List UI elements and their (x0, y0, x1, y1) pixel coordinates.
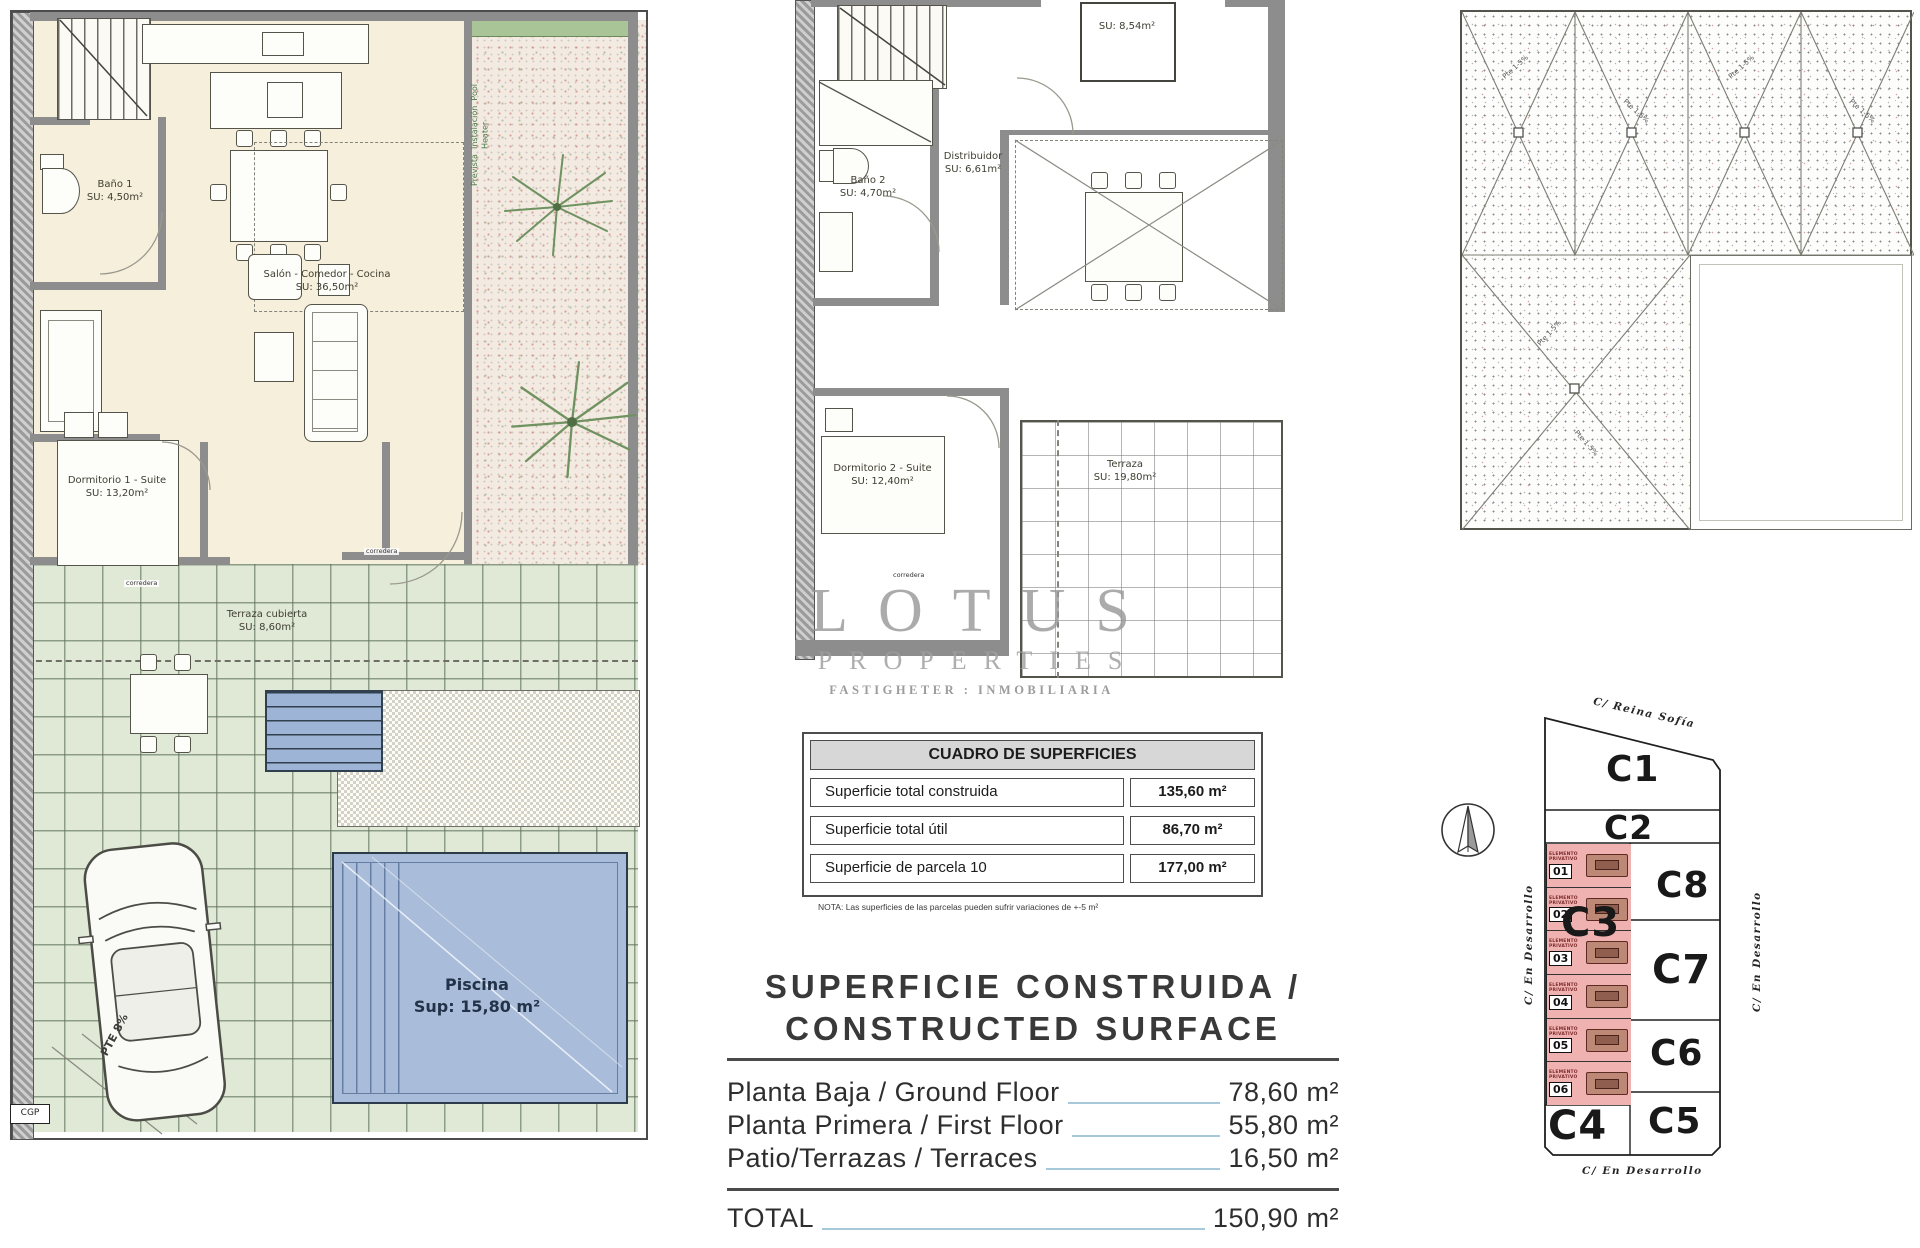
room-label-top: SU: 8,54m² (1077, 20, 1177, 33)
areas-table-note: NOTA: Las superficies de las parcelas pu… (818, 902, 1098, 912)
room-label-salon: Salón - Comedor - Cocina SU: 36,50m² (232, 268, 422, 294)
watermark-tagline: FASTIGHETER : INMOBILIARIA (693, 683, 1250, 698)
summary-row: Patio/Terrazas / Terraces 16,50 m² (727, 1144, 1339, 1174)
room-label-dorm1: Dormitorio 1 - Suite SU: 13,20m² (57, 474, 177, 500)
first-floor-linework (795, 0, 1285, 685)
roof-plan: Pte 1-5% Pte 1-5% Pte 1-5% Pte 1-5% Pte … (1460, 10, 1912, 530)
summary-row-value: 55,80 m² (1228, 1111, 1339, 1141)
plot-label-c7: C7 (1652, 950, 1711, 990)
plant-icon (505, 155, 635, 477)
corredera-label: corredera (124, 580, 159, 587)
summary-rule-bottom (727, 1188, 1339, 1191)
leader-line (1068, 1101, 1221, 1104)
corredera-label: corredera (891, 572, 926, 579)
summary-total-value: 150,90 m² (1213, 1204, 1339, 1234)
roof-linework (1462, 12, 1914, 532)
room-label-dorm2: Dormitorio 2 - Suite SU: 12,40m² (825, 462, 940, 488)
unit-meta: ELEMENTO PRIVATIVO 05 (1549, 1027, 1578, 1054)
unit-number: 04 (1549, 995, 1572, 1010)
room-label-piscina: Piscina Sup: 15,80 m² (392, 974, 562, 1017)
unit-strip: ELEMENTO PRIVATIVO 01 ELEMENTO PRIVATIVO… (1546, 844, 1631, 1105)
plot-label-c2: C2 (1604, 811, 1653, 844)
areas-table-title: CUADRO DE SUPERFICIES (810, 740, 1255, 770)
areas-table-row-label: Superficie de parcela 10 (810, 854, 1124, 883)
areas-table-row-value: 135,60 m² (1130, 778, 1255, 807)
unit-number: 01 (1549, 864, 1572, 879)
unit-building-icon (1586, 1072, 1628, 1095)
corredera-label: corredera (364, 548, 399, 555)
plot-label-c4: C4 (1548, 1106, 1607, 1146)
summary-row-value: 78,60 m² (1228, 1078, 1339, 1108)
room-label-bano1: Baño 1 SU: 4,50m² (60, 178, 170, 204)
summary-row: Planta Baja / Ground Floor 78,60 m² (727, 1078, 1339, 1108)
surface-summary-title: SUPERFICIE CONSTRUIDA / CONSTRUCTED SURF… (700, 966, 1366, 1050)
surface-summary-title-line2: CONSTRUCTED SURFACE (700, 1008, 1366, 1050)
compass-icon (1438, 800, 1498, 860)
summary-row-value: 16,50 m² (1228, 1144, 1339, 1174)
summary-row-label: Planta Primera / First Floor (727, 1111, 1064, 1141)
unit-building-icon (1586, 1029, 1628, 1052)
areas-table-row-label: Superficie total construida (810, 778, 1124, 807)
unit-row: ELEMENTO PRIVATIVO 06 (1547, 1062, 1631, 1105)
room-label-terraza: Terraza SU: 19,80m² (1070, 458, 1180, 484)
leader-line (1072, 1134, 1221, 1137)
unit-row: ELEMENTO PRIVATIVO 01 (1547, 844, 1631, 888)
unit-number: 05 (1549, 1038, 1572, 1053)
summary-total-label: TOTAL (727, 1204, 814, 1234)
areas-table-row-label: Superficie total útil (810, 816, 1124, 845)
plot-label-c3: C3 (1561, 903, 1620, 943)
unit-row: ELEMENTO PRIVATIVO 04 (1547, 975, 1631, 1019)
unit-meta: ELEMENTO PRIVATIVO 06 (1549, 1070, 1578, 1097)
unit-number: 06 (1549, 1082, 1572, 1097)
plot-label-c8: C8 (1656, 868, 1709, 904)
summary-row-label: Patio/Terrazas / Terraces (727, 1144, 1038, 1174)
leader-line (822, 1227, 1205, 1230)
surface-summary-title-line1: SUPERFICIE CONSTRUIDA / (700, 966, 1366, 1008)
unit-building-icon (1586, 985, 1628, 1008)
unit-meta: ELEMENTO PRIVATIVO 04 (1549, 983, 1578, 1010)
areas-table: CUADRO DE SUPERFICIES Superficie total c… (802, 732, 1263, 897)
street-label-right: C/ En Desarrollo (1752, 891, 1763, 1012)
plot-label-c1: C1 (1606, 752, 1659, 788)
plot-label-c5: C5 (1648, 1104, 1701, 1140)
unit-meta: ELEMENTO PRIVATIVO 01 (1549, 852, 1578, 879)
summary-rule-top (727, 1058, 1339, 1061)
unit-building-icon (1586, 854, 1628, 877)
areas-table-row-value: 177,00 m² (1130, 854, 1255, 883)
leader-line (1046, 1167, 1221, 1170)
room-label-terraza-cubierta: Terraza cubierta SU: 8,60m² (192, 608, 342, 634)
unit-row: ELEMENTO PRIVATIVO 05 (1547, 1019, 1631, 1063)
room-label-distribuidor: Distribuidor SU: 6,61m² (923, 150, 1023, 176)
unit-number: 03 (1549, 951, 1572, 966)
ground-floor-plan: CGP (10, 10, 648, 1140)
summary-row: Planta Primera / First Floor 55,80 m² (727, 1111, 1339, 1141)
street-label-bottom: C/ En Desarrollo (1582, 1166, 1703, 1177)
plot-label-c6: C6 (1650, 1036, 1703, 1072)
street-label-left: C/ En Desarrollo (1524, 884, 1535, 1005)
first-floor-plan: SU: 8,54m² Distribuidor SU: 6,61m² Baño … (795, 0, 1285, 685)
pool-heater-note: Prevista Instalación Pool Heater (470, 70, 486, 200)
summary-total-row: TOTAL 150,90 m² (727, 1204, 1339, 1234)
areas-table-row-value: 86,70 m² (1130, 816, 1255, 845)
summary-row-label: Planta Baja / Ground Floor (727, 1078, 1060, 1108)
room-label-bano2: Baño 2 SU: 4,70m² (823, 174, 913, 200)
